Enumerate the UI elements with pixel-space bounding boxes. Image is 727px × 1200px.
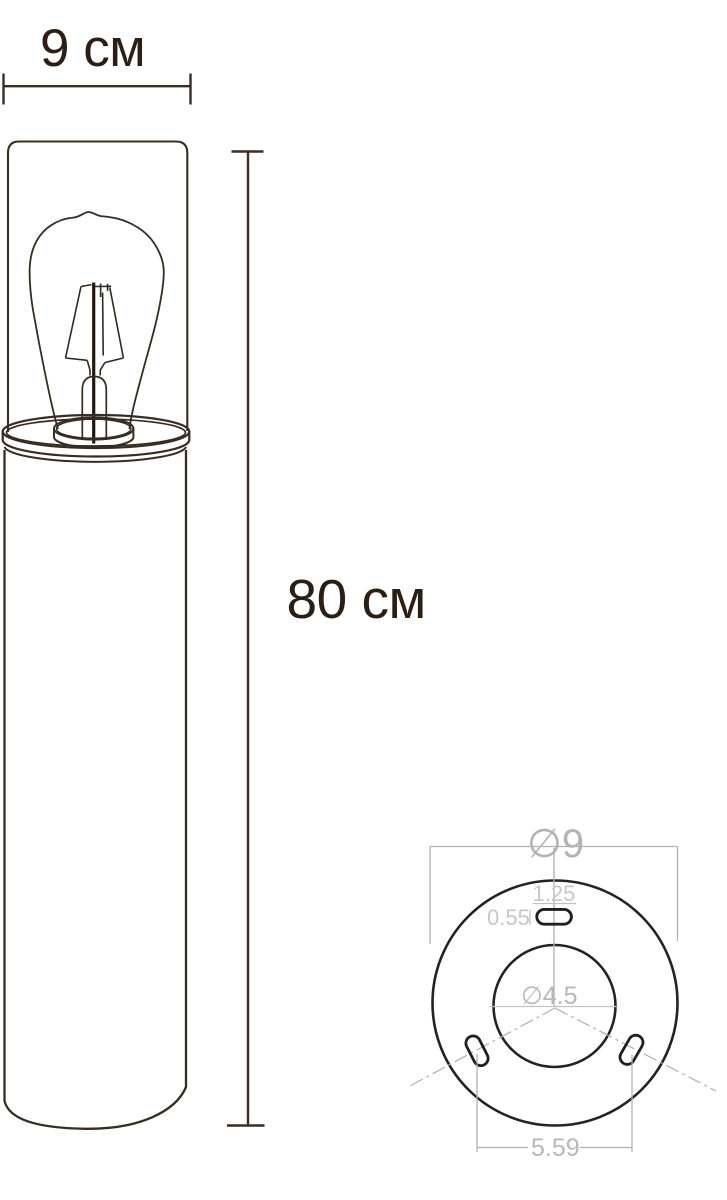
svg-text:5.59: 5.59 (531, 1134, 580, 1162)
svg-text:9 см: 9 см (40, 19, 145, 78)
svg-text:0.55: 0.55 (487, 905, 530, 930)
svg-text:1.25: 1.25 (533, 881, 576, 906)
svg-text:∅9: ∅9 (527, 822, 584, 866)
svg-text:80 см: 80 см (287, 568, 426, 630)
svg-text:∅4.5: ∅4.5 (521, 982, 578, 1010)
